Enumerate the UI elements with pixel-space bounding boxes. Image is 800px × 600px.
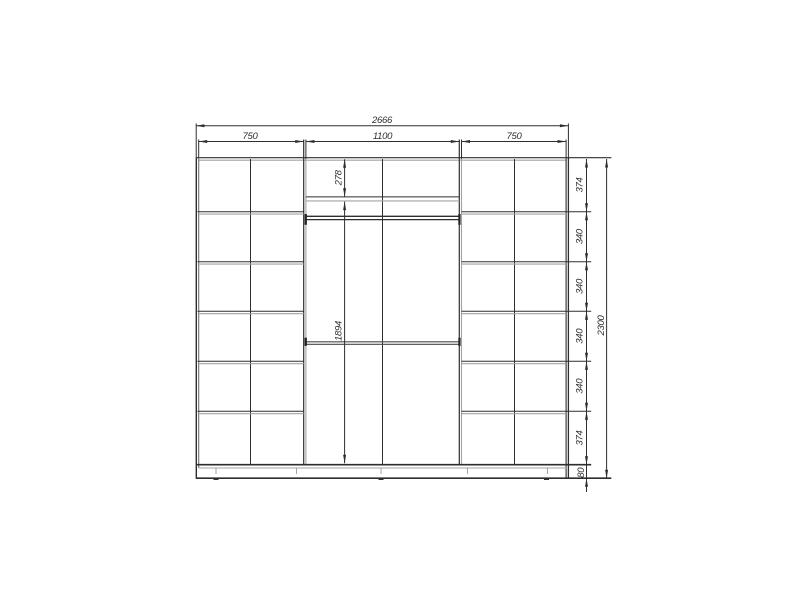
svg-text:278: 278 [334, 169, 345, 186]
svg-text:1100: 1100 [373, 131, 393, 142]
svg-text:2300: 2300 [596, 315, 607, 337]
svg-text:374: 374 [575, 431, 586, 446]
svg-text:80: 80 [576, 467, 587, 478]
svg-text:340: 340 [575, 328, 586, 344]
svg-text:1894: 1894 [334, 321, 345, 341]
svg-text:750: 750 [507, 131, 523, 142]
svg-text:750: 750 [243, 131, 259, 142]
svg-text:340: 340 [575, 228, 586, 244]
svg-text:340: 340 [575, 378, 586, 394]
svg-text:340: 340 [575, 278, 586, 294]
svg-text:2666: 2666 [371, 115, 393, 126]
svg-text:374: 374 [575, 178, 586, 193]
